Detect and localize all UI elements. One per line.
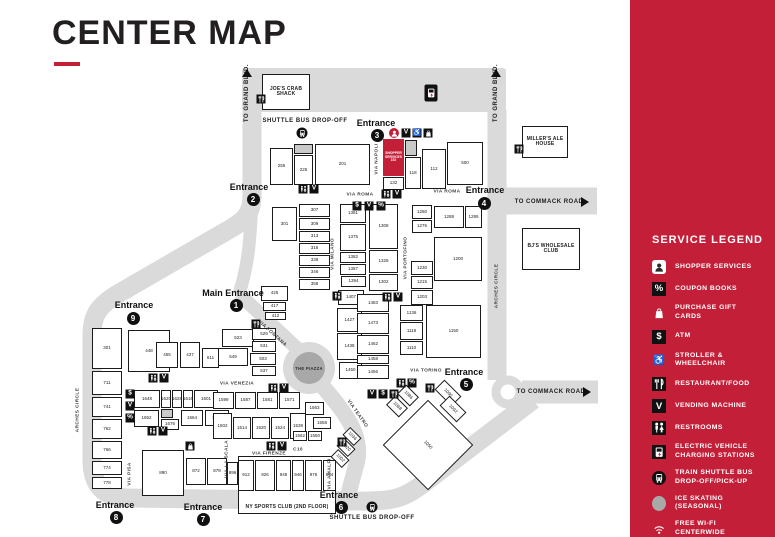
vending-icon: V	[126, 402, 135, 411]
building-313: 313	[299, 231, 330, 242]
building-307: 307	[299, 204, 330, 217]
street-label-shuttle-bus-drop-off: SHUTTLE BUS DROP-OFF	[263, 118, 348, 124]
legend-item-ice-skating-seasonal: ICE SKATING (SEASONAL)	[652, 495, 765, 513]
street-label-via-amalfi: VIA AMALFI	[328, 458, 333, 489]
legend-item-train-shuttle-bus-drop-off-pick-up: TRAIN SHUTTLE BUS DROP-OFF/PICK-UP	[652, 469, 765, 487]
building-number: 1538	[293, 424, 303, 429]
building-number: 417	[271, 304, 279, 309]
building-1288: 1288	[434, 206, 464, 228]
building-number: 309	[311, 222, 319, 227]
building-number: 313	[311, 234, 319, 239]
building-number: 1308	[378, 224, 388, 229]
building-316: 316	[299, 243, 330, 254]
entrance-6-marker: 6	[335, 501, 348, 514]
legend-item-label: PURCHASE GIFT CARDS	[675, 304, 765, 322]
building-1326: 1326	[369, 250, 398, 273]
legend-item-shopper-services: SHOPPER SERVICES	[652, 260, 765, 274]
legend-item-vending-machine: VVENDING MACHINE	[652, 399, 765, 413]
street-label-arches-circle: ARCHES CIRCLE	[76, 388, 81, 433]
street-label-to-commack-road: TO COMMACK ROAD	[517, 389, 586, 395]
legend-item-stroller-wheelchair: ♿STROLLER & WHEELCHAIR	[652, 352, 765, 370]
building-unit	[294, 144, 313, 154]
street-label-via-roma: VIA ROMA	[433, 190, 460, 195]
building-number: 1302	[378, 280, 388, 285]
building-number: 412	[272, 314, 280, 319]
building-112: 112	[422, 149, 446, 189]
mall-map: THE PIAZZA JOE'S CRAB SHACKMILLER'S ALE …	[0, 0, 630, 537]
restroom-icon	[299, 185, 308, 194]
building-number: 118	[409, 171, 416, 176]
ev-icon	[652, 445, 666, 459]
building-number: 1200	[453, 257, 463, 262]
building-1652: 1652	[134, 410, 159, 427]
street-label-to-commack-road: TO COMMACK ROAD	[515, 199, 584, 205]
building-number: 1458	[368, 357, 378, 362]
building-number: 448	[145, 349, 153, 354]
building-number: JOE'S CRAB SHACK	[263, 85, 309, 100]
legend-item-free-wi-fi-centerwide: FREE WI-FI CENTERWIDE	[652, 520, 765, 537]
street-label-via-roma: VIA ROMA	[346, 193, 373, 198]
building-1375: 1375	[340, 224, 366, 251]
building-number: 1086	[403, 390, 414, 401]
building-number: 1407	[346, 295, 356, 300]
building-1456: 1456	[357, 365, 389, 379]
building-number: 1230	[417, 266, 427, 271]
building-number: 912	[242, 473, 250, 478]
street-label-via-milano: VIA MILANO	[331, 238, 336, 270]
legend-item-purchase-gift-cards: PURCHASE GIFT CARDS	[652, 304, 765, 322]
building-503: 503	[250, 353, 276, 365]
building-1520: 1520	[252, 417, 270, 439]
building-500: 500	[447, 142, 483, 185]
service-legend-panel: SERVICE LEGEND SHOPPER SERVICES%COUPON B…	[630, 0, 775, 537]
building-890: 890	[142, 450, 184, 496]
building-358: 358	[299, 279, 330, 290]
building-number: 1483	[368, 301, 378, 306]
legend-item-label: SHOPPER SERVICES	[675, 263, 752, 272]
building-number: 1616	[183, 397, 193, 402]
entrance-6-label: Entrance	[320, 490, 359, 500]
building-number: 1599	[218, 398, 228, 403]
building-549: 549	[218, 348, 248, 366]
legend-item-label: ELECTRIC VEHICLE CHARGING STATIONS	[675, 443, 765, 461]
building-number: 1361	[348, 211, 358, 216]
legend-item-restaurant-food: RESTAURANT/FOOD	[652, 377, 765, 391]
vending-icon: V	[160, 374, 169, 383]
building-number: 1150	[449, 329, 459, 334]
building-number: 1462	[368, 342, 378, 347]
building-1550: 1550	[308, 431, 322, 441]
building-1118: 1118	[400, 322, 423, 340]
building-number: 878	[213, 469, 221, 474]
legend-item-label: RESTAURANT/FOOD	[675, 380, 750, 389]
building-number: BJ'S WHOLESALE CLUB	[523, 242, 579, 257]
building-number: 766	[103, 448, 111, 453]
building-1308: 1308	[369, 204, 398, 249]
building-1524: 1524	[271, 417, 289, 439]
vending-icon: V	[365, 202, 374, 211]
building-number: 132	[390, 181, 398, 186]
restroom-icon	[382, 190, 391, 199]
building-number: 358	[311, 282, 319, 287]
building-number: 1002	[335, 453, 346, 464]
building-1462: 1462	[357, 335, 389, 354]
building-number: 1375	[348, 235, 358, 240]
bus-icon	[652, 471, 666, 485]
building-unit	[161, 409, 173, 418]
legend-item-label: RESTROOMS	[675, 424, 723, 433]
street-label-via-la-scala: VIA LA SCALA	[225, 440, 230, 478]
arrow-right-icon	[583, 387, 591, 397]
building-1302: 1302	[369, 274, 398, 291]
building-778: 778	[92, 477, 122, 489]
building-number: 1288	[444, 215, 454, 220]
building-1295: 1295	[465, 206, 482, 228]
coupon-icon: %	[377, 202, 386, 211]
building-1563: 1563	[305, 402, 324, 415]
building-number: 1652	[141, 416, 151, 421]
building-number: 1394	[348, 279, 358, 284]
vending-icon: V	[402, 129, 411, 138]
entrance-3-marker: 3	[371, 129, 384, 142]
building-762: 762	[92, 419, 122, 439]
building-number: 1601	[201, 397, 211, 402]
building-number: 1326	[378, 259, 388, 264]
building-1620: 1620	[161, 390, 171, 408]
legend-item-label: STROLLER & WHEELCHAIR	[675, 352, 765, 370]
legend-item-restrooms: RESTROOMS	[652, 421, 765, 435]
legend-item-label: ATM	[675, 332, 691, 341]
building-1230: 1230	[411, 261, 433, 275]
building-number: 1571	[284, 398, 294, 403]
building-1599: 1599	[213, 392, 234, 409]
shopper-icon	[652, 260, 666, 274]
building-number: 711	[103, 381, 110, 386]
building-number: 762	[103, 427, 111, 432]
building-number: 1276	[417, 224, 427, 229]
building-437: 437	[180, 342, 200, 368]
street-label-c10: C10	[293, 448, 303, 453]
building-number: 455	[163, 353, 171, 358]
building-number: 741	[103, 405, 111, 410]
building-1203: 1203	[411, 290, 433, 305]
ev-icon	[425, 85, 438, 102]
street-label-via-venezia: VIA VENEZIA	[220, 382, 254, 387]
coupon-icon: %	[652, 282, 666, 296]
vending-icon: V	[368, 390, 377, 399]
arrow-right-icon	[581, 197, 589, 207]
building-1394: 1394	[341, 276, 366, 287]
building-741: 741	[92, 397, 122, 417]
vending-icon: V	[393, 190, 402, 199]
building-946: 946	[292, 460, 304, 491]
building-number: 316	[311, 246, 319, 251]
building-number: 1450	[345, 368, 355, 373]
building-1276: 1276	[412, 220, 432, 233]
building-711: 711	[92, 371, 122, 395]
restroom-icon	[269, 384, 278, 393]
entrance-1-marker: 1	[230, 299, 243, 312]
entrance-9-marker: 9	[127, 312, 140, 325]
vending-icon: V	[159, 427, 168, 436]
legend-items: SHOPPER SERVICES%COUPON BOOKSPURCHASE GI…	[652, 260, 765, 537]
legend-item-atm: $ATM	[652, 330, 765, 344]
bus-icon	[297, 128, 308, 139]
building-number: 301	[103, 346, 111, 351]
building-1280: 1280	[412, 205, 432, 219]
atm-icon: $	[652, 330, 666, 344]
entrance-7-label: Entrance	[184, 502, 223, 512]
building-number: 1136	[407, 311, 417, 316]
entrance-4-label: Entrance	[466, 185, 505, 195]
building-number: 307	[311, 208, 319, 213]
building-926: 926	[255, 460, 275, 491]
restaurant-icon	[252, 320, 261, 329]
building-523: 523	[222, 329, 254, 347]
building-number: 1456	[368, 370, 378, 375]
building-number: 1387	[348, 267, 358, 272]
building-number: 346	[311, 270, 319, 275]
building-201: 201	[315, 144, 370, 185]
building-number: 523	[234, 336, 242, 341]
atm-icon: $	[126, 390, 135, 399]
entrance-9-label: Entrance	[115, 300, 154, 310]
building-531: 531	[252, 341, 276, 352]
building-1387: 1387	[340, 264, 366, 275]
building-301: 301	[272, 207, 297, 241]
legend-item-coupon-books: %COUPON BOOKS	[652, 282, 765, 296]
building-132: 132	[383, 177, 404, 190]
building-1110: 1110	[400, 341, 423, 355]
building-number: 896	[229, 471, 237, 476]
building-number: 1524	[275, 426, 285, 431]
entrance-2-marker: 2	[247, 193, 260, 206]
restroom-icon	[383, 293, 392, 302]
legend-item-label: FREE WI-FI CENTERWIDE	[675, 520, 765, 537]
building-number: 1068	[392, 401, 403, 412]
building-number: 1050	[423, 440, 434, 451]
shopper-icon	[389, 128, 399, 138]
building-joe-s-crab-shack: JOE'S CRAB SHACK	[262, 74, 310, 110]
building-number: 549	[229, 355, 237, 360]
entrance-8-marker: 8	[110, 511, 123, 524]
building-1473: 1473	[357, 313, 389, 334]
entrance-5-label: Entrance	[445, 367, 484, 377]
building-1587: 1587	[235, 392, 256, 409]
building-number: 1036	[347, 431, 358, 442]
vending-icon: V	[652, 399, 666, 413]
entrance-3-label: Entrance	[357, 118, 396, 128]
restaurant-icon	[338, 438, 347, 447]
legend-item-label: VENDING MACHINE	[675, 402, 746, 411]
legend-title: SERVICE LEGEND	[652, 234, 765, 246]
building-number: 1581	[262, 398, 272, 403]
legend-item-label: ICE SKATING (SEASONAL)	[675, 495, 765, 513]
building-number: 1280	[417, 210, 427, 215]
building-455: 455	[156, 342, 178, 368]
entrance-2-label: Entrance	[230, 182, 269, 192]
street-label-via-torino: VIA TORINO	[410, 369, 442, 374]
building-255: 255	[270, 148, 293, 185]
building-number: 774	[103, 466, 111, 471]
street-label-via-pisa: VIA PISA	[128, 462, 133, 486]
skate-icon	[652, 496, 666, 511]
building-number: NY SPORTS CLUB (2ND FLOOR)	[244, 503, 331, 514]
building-number: 537	[260, 369, 268, 374]
building-611: 611	[202, 348, 219, 368]
building-number: 255	[278, 164, 286, 169]
restaurant-icon	[390, 390, 399, 399]
building-unit	[405, 140, 417, 156]
entrance-4-marker: 4	[478, 197, 491, 210]
building-number: 1110	[407, 346, 416, 351]
restroom-icon	[333, 292, 342, 301]
building-number: 872	[192, 469, 200, 474]
wifi-icon	[652, 522, 666, 536]
arrow-up-icon	[491, 69, 501, 77]
building-1514: 1514	[233, 417, 251, 439]
building-425: 425	[261, 286, 288, 301]
building-1136: 1136	[400, 305, 423, 321]
building-774: 774	[92, 461, 122, 475]
building-417: 417	[263, 302, 286, 311]
building-number: 500	[461, 161, 469, 166]
building-1458: 1458	[357, 355, 389, 364]
street-label-via-firenze: VIA FIRENZE	[252, 452, 286, 457]
building-number: 1438	[344, 344, 354, 349]
building-number: 1558	[317, 421, 327, 426]
building-number: 926	[261, 473, 269, 478]
restaurant-icon	[652, 377, 666, 391]
building-766: 766	[92, 441, 122, 459]
restaurant-icon	[426, 384, 435, 393]
building-912: 912	[238, 460, 254, 491]
building-1502: 1502	[213, 413, 232, 439]
building-872: 872	[186, 458, 206, 485]
building-1215: 1215	[411, 276, 433, 289]
building-number: 301	[281, 222, 289, 227]
building-537: 537	[252, 366, 276, 376]
coupon-icon: %	[408, 379, 417, 388]
gift-icon	[424, 129, 433, 138]
restaurant-icon	[515, 145, 524, 154]
building-1581: 1581	[257, 392, 278, 409]
building-number: 948	[280, 473, 288, 478]
bus-icon	[367, 502, 378, 513]
building-number: 976	[310, 473, 318, 478]
vending-icon: V	[278, 442, 287, 451]
building-number: 425	[271, 291, 279, 296]
building-number: 1664	[187, 416, 197, 421]
building-number: 1118	[407, 329, 416, 334]
gift-icon	[186, 442, 195, 451]
legend-item-label: TRAIN SHUTTLE BUS DROP-OFF/PICK-UP	[675, 469, 765, 487]
building-number: 1203	[417, 295, 427, 300]
building-number: 778	[103, 481, 111, 486]
building-1200: 1200	[434, 237, 482, 281]
building-number: 1587	[240, 398, 250, 403]
restroom-icon	[149, 374, 158, 383]
building-number: 1620	[161, 397, 171, 402]
building-number: 112	[430, 167, 437, 172]
building-number: 503	[259, 357, 267, 362]
building-number: 890	[159, 471, 167, 476]
arrow-up-icon	[242, 69, 252, 77]
building-1628: 1628	[172, 390, 182, 408]
building-309: 309	[299, 218, 330, 230]
building-1648: 1648	[134, 390, 160, 408]
entrance-8-label: Entrance	[96, 500, 135, 510]
vending-icon: V	[280, 384, 289, 393]
legend-item-label: COUPON BOOKS	[675, 285, 737, 294]
building-number: 225	[300, 168, 308, 173]
restroom-icon	[267, 442, 276, 451]
vending-icon: V	[310, 185, 319, 194]
street-label-arches-circle: ARCHES CIRCLE	[495, 264, 500, 309]
building-number: 1562	[295, 434, 305, 439]
coupon-icon: %	[126, 414, 135, 423]
gift-icon	[652, 306, 666, 320]
wheelchair-icon: ♿	[413, 129, 422, 138]
building-number: 201	[339, 162, 347, 167]
street-label-via-portofino: VIA PORTOFINO	[404, 237, 409, 280]
building-338: 338	[299, 255, 330, 266]
entrance-1-label: Main Entrance	[202, 288, 264, 298]
restroom-icon	[397, 379, 406, 388]
building-number: 946	[294, 473, 302, 478]
building-1562: 1562	[293, 431, 307, 441]
building-number: 1215	[417, 280, 427, 285]
building-1558: 1558	[313, 417, 331, 429]
building-number: 1427	[344, 318, 354, 323]
building-225: 225	[294, 155, 313, 185]
atm-icon: $	[379, 390, 388, 399]
vending-icon: V	[394, 293, 403, 302]
building-number: 1092	[448, 404, 459, 415]
building-number: 531	[260, 344, 268, 349]
building-number: 1628	[172, 397, 182, 402]
street-label-via-napoli: VIA NAPOLI	[375, 143, 380, 174]
building-shopper-services-152: SHOPPER SERVICES 152	[383, 139, 404, 176]
restaurant-icon	[257, 95, 266, 104]
building-number: 1502	[217, 424, 227, 429]
building-118: 118	[405, 157, 421, 189]
center-map-page: CENTER MAP THE PIAZZA JOE'S CRAB SHACKMI…	[0, 0, 775, 537]
building-301: 301	[92, 328, 122, 369]
building-miller-s-ale-house: MILLER'S ALE HOUSE	[522, 126, 568, 158]
entrance-5-marker: 5	[460, 378, 473, 391]
building-number: 1648	[142, 397, 152, 402]
building-number: SHOPPER SERVICES 152	[384, 152, 403, 163]
building-1150: 1150	[426, 305, 481, 358]
building-number: 1382	[348, 255, 358, 260]
entrance-7-marker: 7	[197, 513, 210, 526]
building-1664: 1664	[181, 410, 203, 426]
building-412: 412	[265, 312, 286, 320]
building-1616: 1616	[183, 390, 193, 408]
building-number: 1514	[237, 426, 247, 431]
building-number: 1563	[309, 406, 319, 411]
legend-item-electric-vehicle-charging-stations: ELECTRIC VEHICLE CHARGING STATIONS	[652, 443, 765, 461]
building-number: 437	[186, 353, 194, 358]
building-number: MILLER'S ALE HOUSE	[523, 135, 567, 150]
building-346: 346	[299, 267, 330, 278]
the-piazza-ice-rink: THE PIAZZA	[293, 352, 325, 384]
street-label-shuttle-bus-drop-off: SHUTTLE BUS DROP-OFF	[330, 515, 415, 521]
building-number: 1295	[468, 215, 478, 220]
building-number: 338	[311, 258, 319, 263]
building-976: 976	[305, 460, 322, 491]
